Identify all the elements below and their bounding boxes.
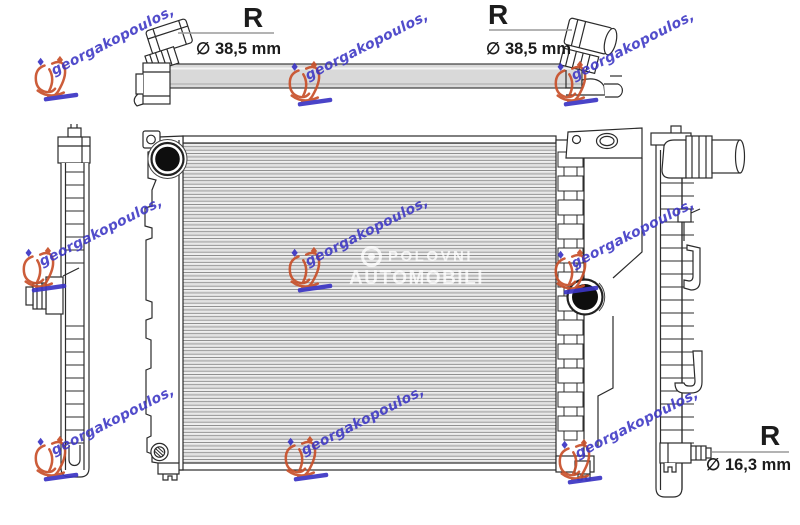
right-hook-bracket-upper [684,245,700,290]
main-radiator-front-view [143,128,642,480]
dimension-label-bottom-right: R [760,422,780,450]
right-bottom-connector [660,443,711,472]
dimension-value-bottom-right: ∅ 16,3 mm [706,457,791,474]
hose-connector-left [134,18,193,106]
left-foot [158,463,179,480]
dimension-value-top-left: ∅ 38,5 mm [196,41,281,58]
right-foot [556,456,594,480]
right-side-view [651,126,745,497]
core-top-plate [183,136,556,143]
right-top-hose-connector [662,136,745,178]
drain-plug [151,443,168,460]
radiator-core [183,143,556,463]
left-bottom-prong [69,445,80,466]
left-tank [143,131,187,480]
top-hose-assembly [134,18,622,106]
left-side-top-cap [58,137,90,163]
right-tank [556,128,642,480]
core-bottom-plate [176,463,556,470]
radiator-technical-drawing: R ∅ 38,5 mm R ∅ 38,5 mm R ∅ 16,3 mm geor… [0,0,800,525]
dimension-value-top-right: ∅ 38,5 mm [486,41,571,58]
left-side-view [26,124,90,477]
dimension-label-top-right: R [488,1,508,29]
dimension-label-top-left: R [243,4,263,32]
line-art [0,0,800,525]
